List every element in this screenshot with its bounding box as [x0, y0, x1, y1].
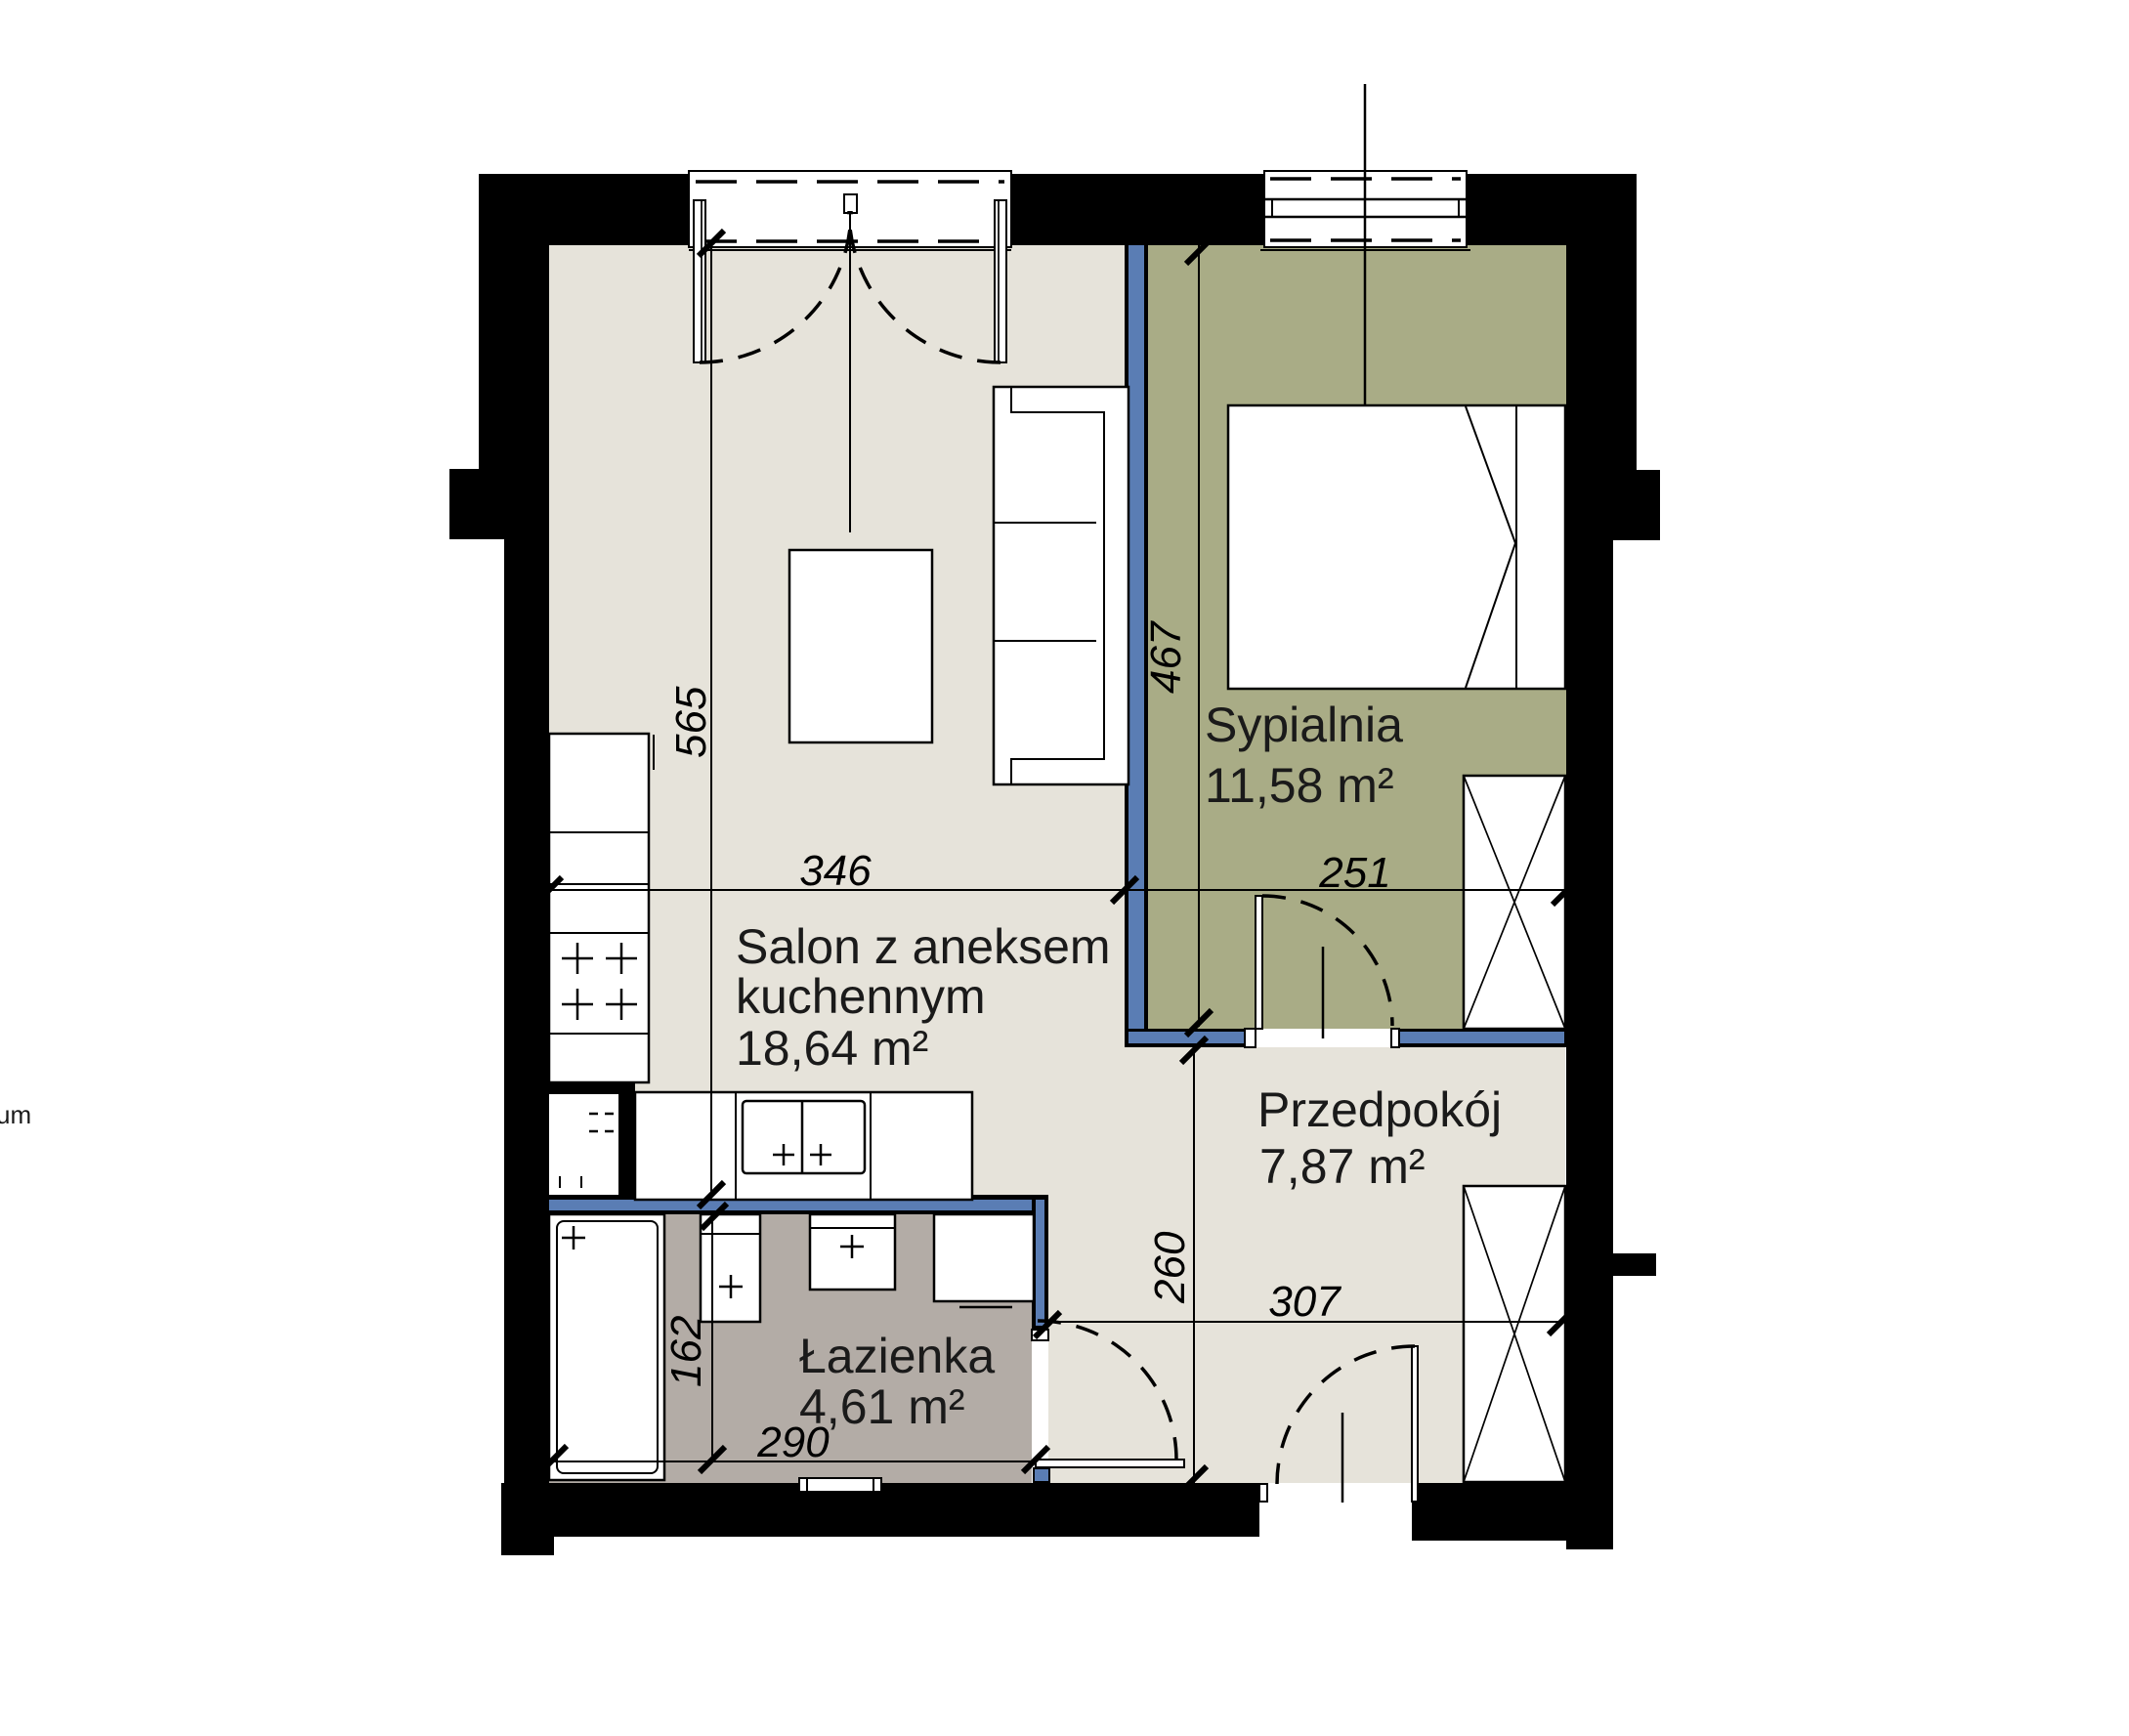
- svg-text:um: um: [0, 1100, 31, 1129]
- svg-text:Przedpokój: Przedpokój: [1257, 1082, 1502, 1137]
- svg-text:346: 346: [799, 847, 872, 895]
- svg-text:260: 260: [1146, 1231, 1194, 1304]
- svg-text:kuchennym: kuchennym: [736, 969, 986, 1024]
- svg-text:Salon z aneksem: Salon z aneksem: [736, 919, 1111, 974]
- svg-text:18,64 m²: 18,64 m²: [736, 1021, 928, 1076]
- svg-text:7,87 m²: 7,87 m²: [1259, 1139, 1426, 1194]
- svg-text:Sypialnia: Sypialnia: [1205, 698, 1403, 752]
- svg-text:307: 307: [1268, 1278, 1341, 1326]
- svg-text:251: 251: [1318, 849, 1390, 897]
- svg-text:467: 467: [1142, 620, 1190, 694]
- svg-text:162: 162: [662, 1316, 710, 1387]
- svg-text:Łazienka: Łazienka: [799, 1329, 995, 1383]
- svg-text:565: 565: [667, 686, 715, 758]
- svg-text:11,58 m²: 11,58 m²: [1205, 758, 1394, 813]
- svg-text:290: 290: [756, 1418, 830, 1466]
